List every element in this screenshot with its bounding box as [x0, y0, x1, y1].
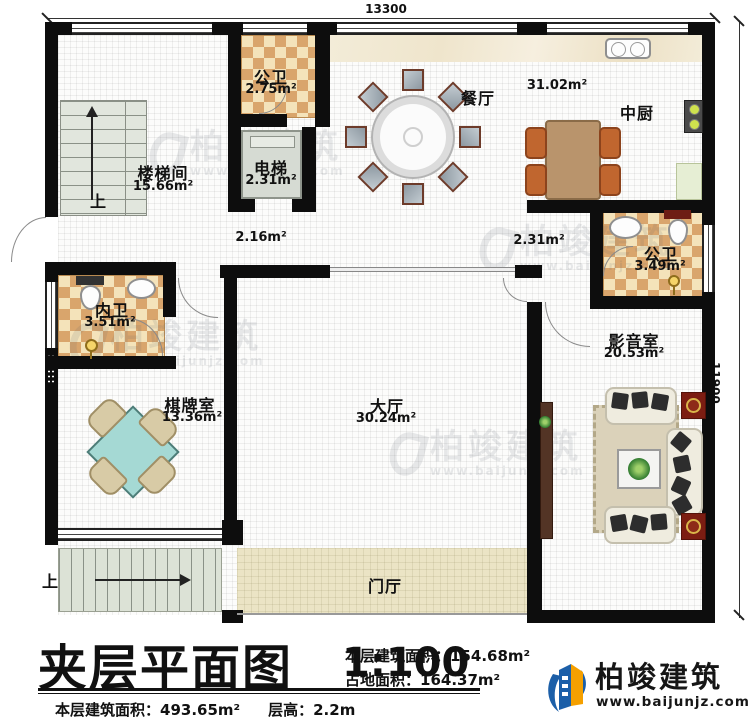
brand-website: www.baijunjz.com — [596, 694, 750, 710]
wall — [45, 356, 176, 369]
toilet-tank — [76, 276, 104, 285]
room-area-elevator: 2.31m² — [245, 173, 296, 188]
wall — [212, 22, 243, 35]
side-table-decor — [686, 519, 701, 534]
dimension-top: 13300 — [365, 2, 407, 16]
kitchen-table — [545, 120, 601, 200]
window — [58, 528, 222, 541]
dining-chair — [402, 183, 424, 205]
wall — [702, 292, 715, 623]
plant — [628, 458, 650, 480]
room-label-foyer: 门厅 — [368, 573, 402, 597]
wall — [590, 213, 603, 309]
sofa-cushion — [651, 393, 670, 412]
stove-burner — [689, 119, 700, 130]
stair-up-label: 上 — [42, 568, 58, 592]
brand-name: 柏竣建筑 — [595, 662, 723, 692]
kitchen-chair — [599, 164, 621, 196]
wall — [307, 22, 337, 35]
sofa-cushion — [610, 514, 629, 533]
wall — [45, 262, 163, 275]
title-underline-thin — [38, 693, 480, 694]
stair-arrow-line — [95, 579, 180, 581]
plant — [539, 416, 551, 428]
room-area-bath-top: 2.75m² — [245, 82, 296, 97]
wall — [292, 199, 316, 212]
land-area-line: 占地面积：164.37m² — [345, 669, 500, 690]
wall — [224, 278, 237, 545]
wall — [228, 199, 255, 212]
brand-logo-icon — [547, 660, 589, 718]
stove-burner — [689, 104, 700, 115]
window — [72, 22, 212, 35]
room-label-dining: 餐厅 — [461, 85, 495, 109]
dining-chair — [345, 126, 367, 148]
sink-basin — [611, 42, 626, 57]
shower-stem — [90, 351, 92, 359]
floor-area-line: 本层建筑面积：154.68m² — [345, 645, 530, 666]
window — [702, 225, 715, 292]
room-area-chess: 13.36m² — [162, 410, 222, 425]
wall — [527, 265, 542, 278]
window — [45, 282, 58, 348]
window — [337, 22, 517, 35]
foyer-edge — [237, 613, 527, 615]
floor-plan-canvas: 13300 11900 柏竣建筑www.baijunjz.com 柏竣建筑www… — [0, 0, 750, 728]
wall — [163, 262, 176, 317]
corridor-area-left: 2.16m² — [235, 230, 286, 245]
room-area-bath-right: 3.49m² — [634, 259, 685, 274]
room-area-hall: 30.24m² — [356, 411, 416, 426]
stair-up-label: 上 — [90, 188, 106, 212]
room-area-media: 20.53m² — [604, 346, 664, 361]
dining-table-center — [403, 127, 423, 147]
wall — [241, 114, 287, 127]
wall — [517, 22, 547, 35]
mezzanine-balustrade — [330, 267, 515, 272]
kitchen-chair — [525, 164, 547, 196]
dining-chair — [402, 69, 424, 91]
kitchen-chair — [599, 127, 621, 159]
stair-arrow-right — [180, 574, 191, 586]
wall — [527, 610, 715, 623]
wall — [702, 22, 715, 225]
wall — [45, 22, 58, 217]
wall — [220, 265, 330, 278]
window — [547, 22, 688, 35]
room-area-stairwell: 15.66m² — [133, 179, 193, 194]
wall — [222, 610, 243, 623]
sofa-cushion — [611, 392, 629, 410]
sink — [609, 216, 642, 239]
stair-arrow-up — [86, 106, 98, 117]
total-area-line: 本层建筑面积：493.65m²层高：2.2m — [55, 699, 355, 720]
stair-rail — [125, 100, 127, 216]
side-table-decor — [686, 398, 701, 413]
dimension-line-right — [739, 22, 740, 618]
entry-door-arc — [11, 217, 46, 262]
sofa-cushion — [631, 391, 649, 409]
dining-chair — [459, 126, 481, 148]
sofa-cushion — [650, 513, 667, 530]
elevator-car-inner — [250, 136, 295, 148]
dimension-line-top — [47, 18, 715, 19]
room-area-dining: 31.02m² — [527, 78, 587, 93]
room-area-inner-bath: 3.51m² — [84, 315, 135, 330]
sink-basin — [630, 42, 645, 57]
wall — [590, 296, 715, 309]
wall — [228, 35, 241, 212]
sofa-cushion — [673, 455, 692, 474]
shower-stem — [673, 286, 675, 295]
brand-logo-svg — [547, 660, 589, 718]
sink — [127, 278, 156, 299]
toilet-tank — [664, 210, 691, 219]
wall — [315, 35, 330, 127]
corridor-area-right: 2.31m² — [513, 233, 564, 248]
kitchen-counter — [676, 163, 702, 200]
window — [243, 22, 307, 35]
kitchen-chair — [525, 127, 547, 159]
room-label-kitchen: 中厨 — [620, 100, 654, 124]
